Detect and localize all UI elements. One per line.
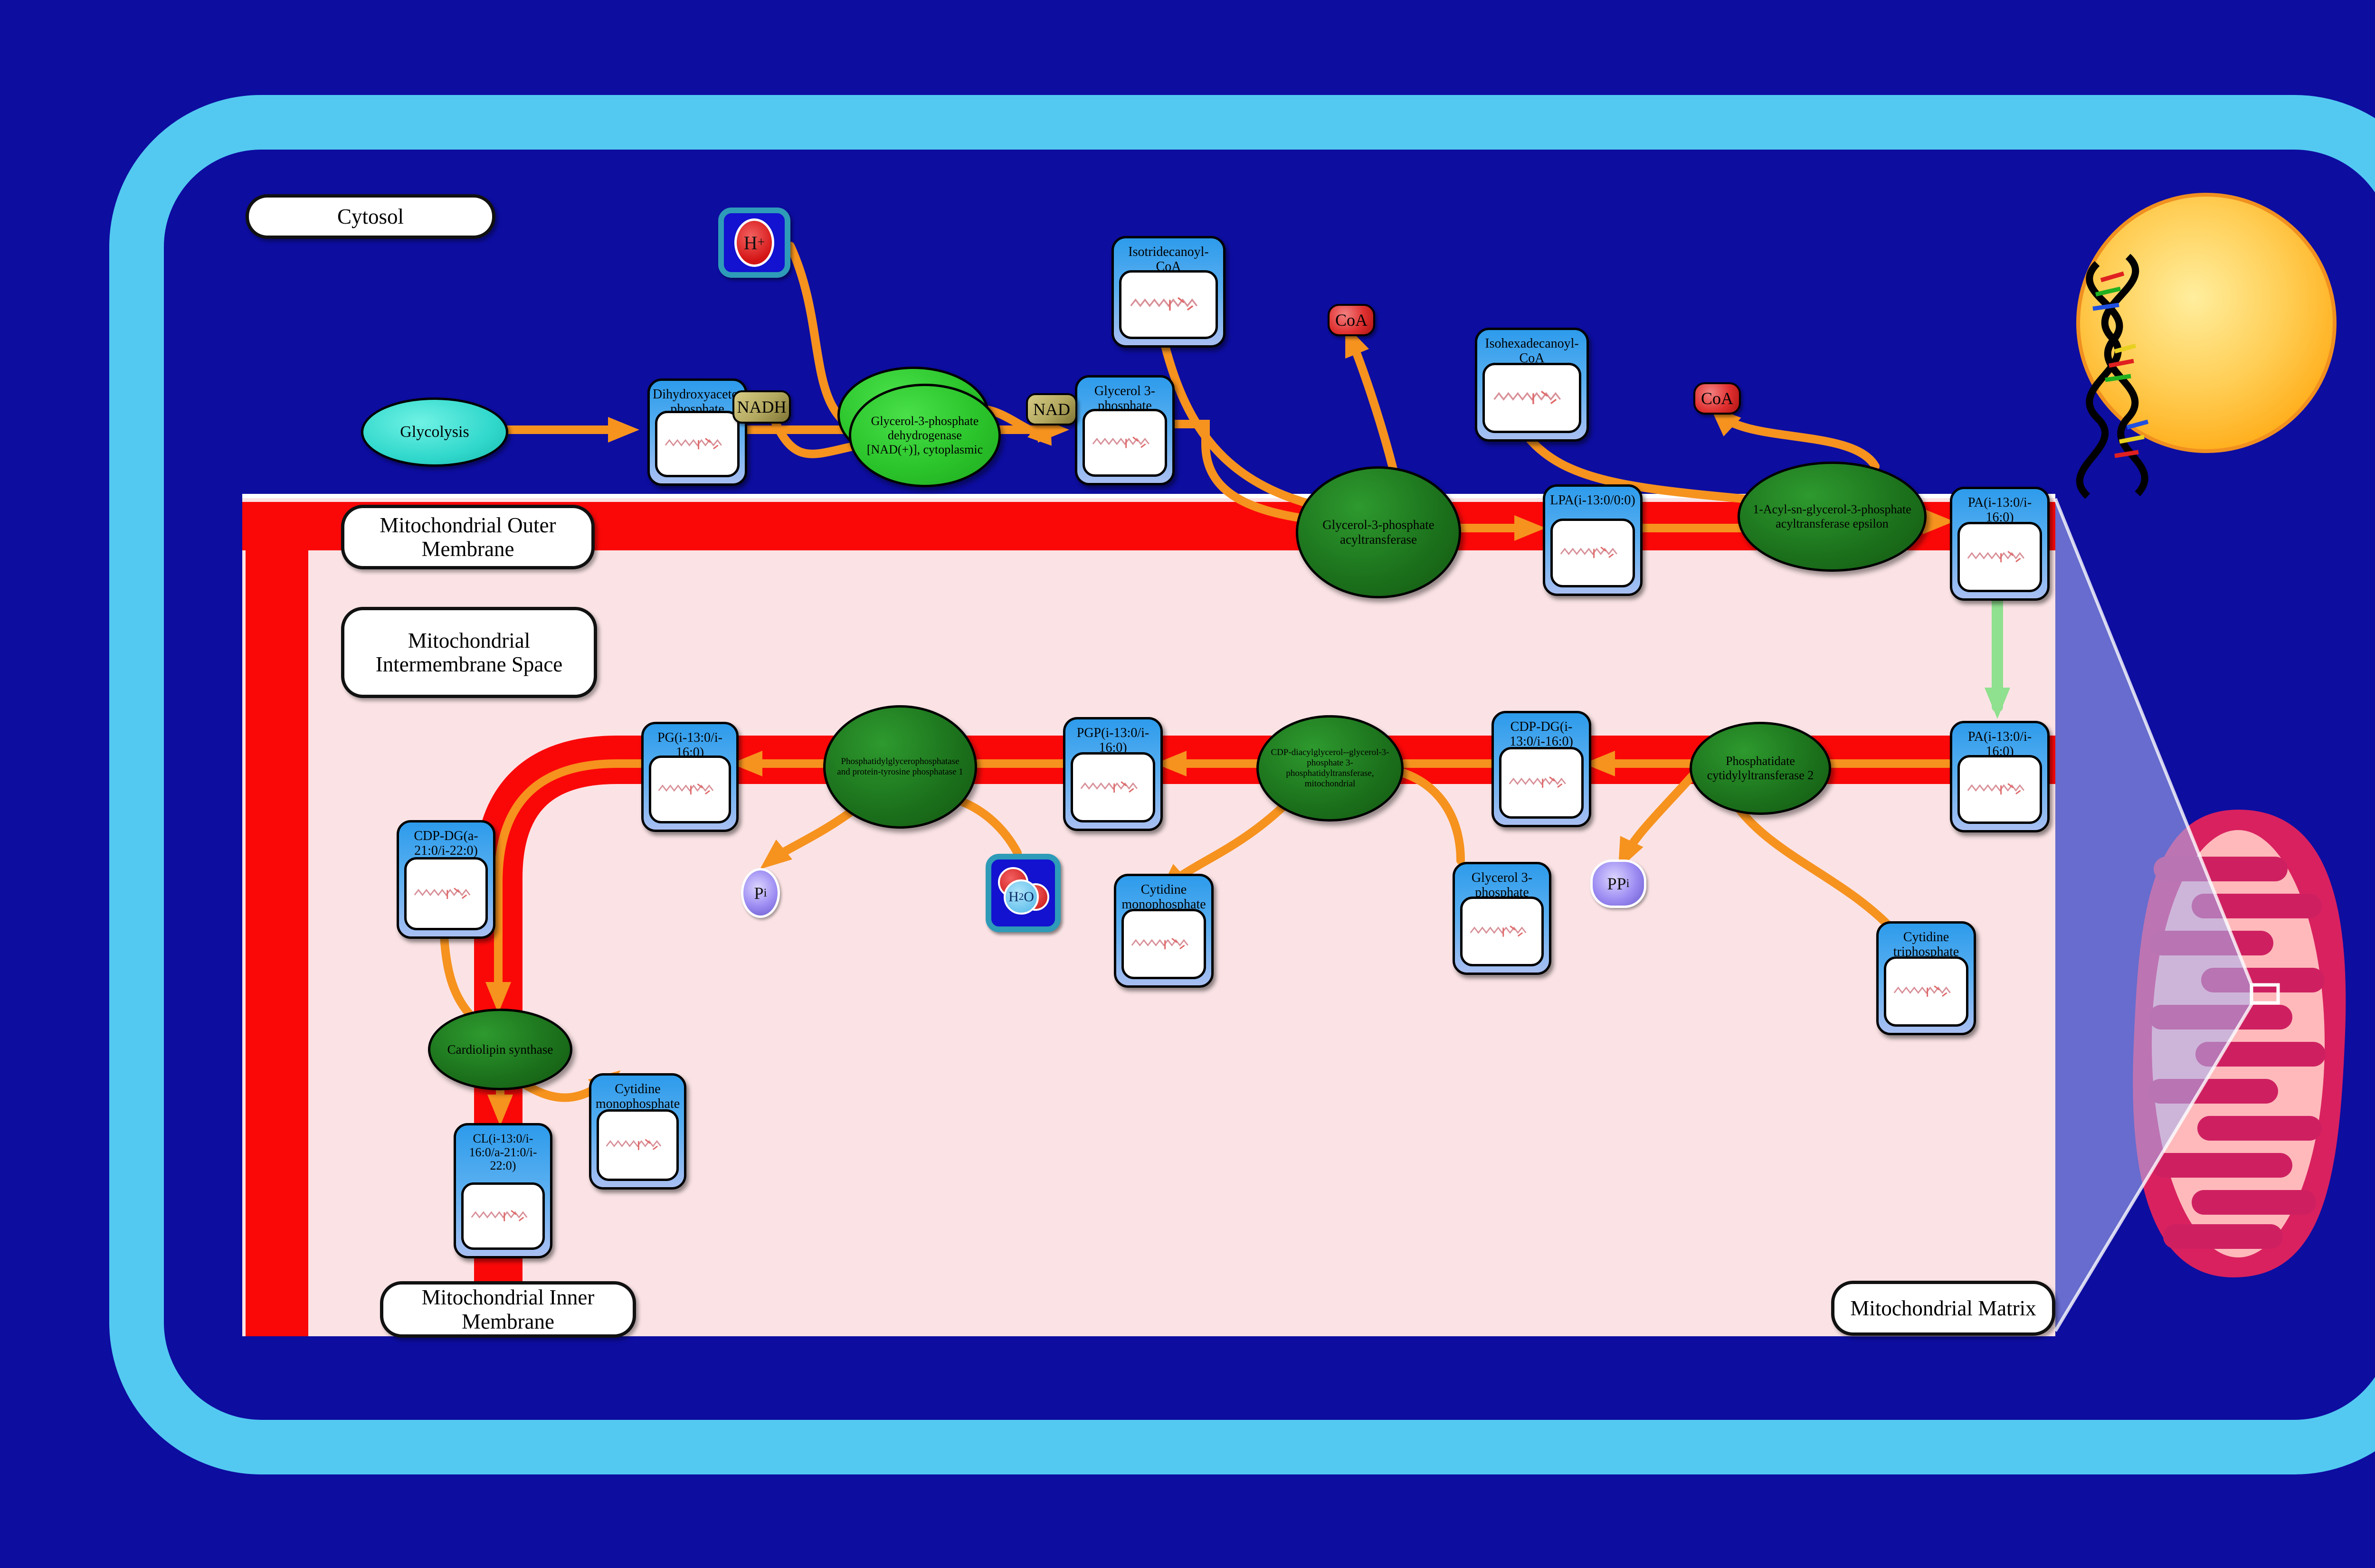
molecule-structure <box>1121 909 1206 979</box>
metabolite-pa-outer[interactable]: PA(i-13:0/i-16:0) <box>1950 487 2050 601</box>
molecule-structure <box>597 1109 679 1181</box>
molecule-structure <box>1499 747 1584 819</box>
cofactor-coa-2[interactable]: CoA <box>1693 382 1741 415</box>
nucleus <box>2078 195 2335 496</box>
molecule-structure <box>1482 363 1581 433</box>
cofactor-h2o-box[interactable]: H2O <box>986 854 1061 932</box>
molecule-structure <box>1884 956 1968 1027</box>
region-label-inner-membrane: Mitochondrial Inner Membrane <box>380 1281 636 1338</box>
enzyme-pgp-phosphatase[interactable]: Phosphatidylglycerophosphatase and prote… <box>823 705 977 829</box>
enzyme-gpd-cytoplasmic[interactable]: Glycerol-3-phosphate dehydrogenase [NAD(… <box>849 384 1001 487</box>
enzyme-pct2[interactable]: Phosphatidate cytidylyltransferase 2 <box>1690 722 1831 815</box>
metabolite-cmp-synthase[interactable]: Cytidine monophosphate <box>589 1073 686 1190</box>
cofactor-nadh[interactable]: NADH <box>732 390 791 424</box>
molecule-structure <box>461 1182 545 1250</box>
cofactor-ppi[interactable]: PPi <box>1590 860 1646 908</box>
molecule-structure <box>1957 755 2042 824</box>
enzyme-gpat[interactable]: Glycerol-3-phosphate acyltransferase <box>1296 466 1461 598</box>
cofactor-pi[interactable]: Pi <box>741 868 780 918</box>
metabolite-pa-inner[interactable]: PA(i-13:0/i-16:0) <box>1950 721 2050 832</box>
metabolite-isohexadecanoyl-coa[interactable]: Isohexadecanoyl-CoA <box>1475 328 1589 442</box>
metabolite-ctp[interactable]: Cytidine triphosphate <box>1876 921 1976 1035</box>
enzyme-cardiolipin-synthase[interactable]: Cardiolipin synthase <box>428 1009 572 1090</box>
edge-ctp-pct2 <box>1738 808 1887 924</box>
metabolite-lpa[interactable]: LPA(i-13:0/0:0) <box>1543 484 1643 596</box>
metabolite-pgp[interactable]: PGP(i-13:0/i-16:0) <box>1063 717 1163 831</box>
edge-phosphatase-pi <box>769 808 856 861</box>
water-molecule: H2O <box>997 867 1049 919</box>
region-label-cytosol: Cytosol <box>246 194 495 239</box>
edge-agpat-coa <box>1719 414 1875 466</box>
metabolite-cdp-dg-1[interactable]: CDP-DG(i-13:0/i-16:0) <box>1491 711 1591 827</box>
edge-gpat-coa <box>1350 336 1396 479</box>
molecule-structure <box>1550 519 1635 587</box>
metabolite-cardiolipin[interactable]: CL(i-13:0/i-16:0/a-21:0/i-22:0) <box>454 1123 552 1258</box>
molecule-structure <box>1957 522 2042 592</box>
molecule-structure <box>404 857 488 930</box>
molecule-structure <box>1083 409 1167 477</box>
cofactor-coa-1[interactable]: CoA <box>1328 304 1375 336</box>
pathway-link-glycolysis[interactable]: Glycolysis <box>361 397 508 467</box>
h-plus-ion: H+ <box>734 218 774 267</box>
molecule-structure <box>1119 270 1218 339</box>
inner-membrane-band <box>498 760 2055 1332</box>
region-label-outer-membrane: Mitochondrial Outer Membrane <box>341 505 595 569</box>
molecule-structure <box>655 411 740 477</box>
region-label-intermembrane-space: Mitochondrial Intermembrane Space <box>341 607 597 698</box>
enzyme-agpat-epsilon[interactable]: 1-Acyl-sn-glycerol-3-phosphate acyltrans… <box>1738 462 1927 572</box>
metabolite-cdp-dg-2[interactable]: CDP-DG(a-21:0/i-22:0) <box>397 820 495 939</box>
cofactor-h-plus-box[interactable]: H+ <box>718 208 790 278</box>
molecule-structure <box>1460 897 1544 966</box>
metabolite-isotridecanoyl-coa[interactable]: Isotridecanoyl-CoA <box>1111 236 1225 348</box>
edge-h2o-phosphatase <box>954 799 1017 853</box>
molecule-structure <box>1071 752 1155 822</box>
region-label-matrix: Mitochondrial Matrix <box>1831 1281 2055 1336</box>
molecule-structure <box>649 756 731 823</box>
edge-pct2-ppi <box>1624 773 1695 859</box>
enzyme-cds-mitochondrial[interactable]: CDP-diacylglycerol--glycerol-3-phosphate… <box>1256 715 1404 822</box>
edge-cdpdg2-cls <box>444 935 476 1021</box>
metabolite-dhap[interactable]: Dihydroxyacetone phosphate <box>647 378 747 486</box>
cofactor-nad[interactable]: NAD <box>1026 393 1077 425</box>
metabolite-cmp-matrix[interactable]: Cytidine monophosphate <box>1114 874 1214 988</box>
pathway-canvas: Cytosol Mitochondrial Outer Membrane Mit… <box>0 0 2375 1568</box>
metabolite-g3p-matrix[interactable]: Glycerol 3-phosphate <box>1453 862 1551 975</box>
metabolite-g3p-cytosol[interactable]: Glycerol 3-phosphate <box>1075 375 1175 485</box>
metabolite-pg[interactable]: PG(i-13:0/i-16:0) <box>641 722 739 832</box>
